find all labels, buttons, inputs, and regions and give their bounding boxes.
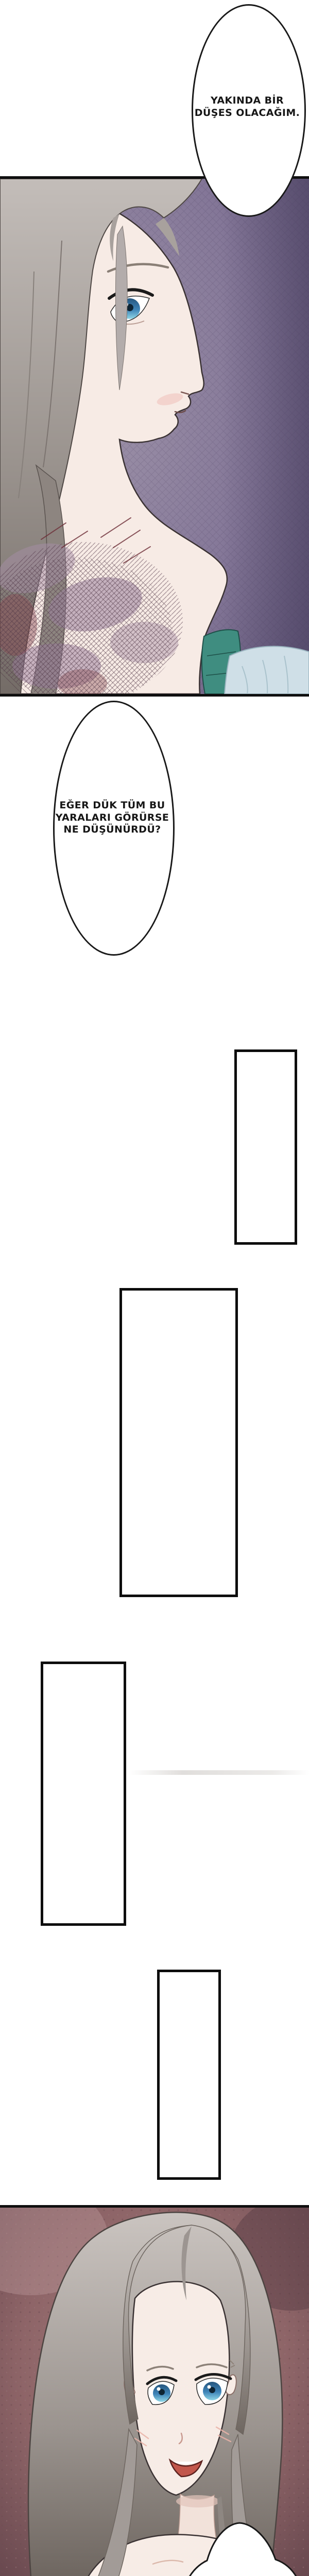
speech-text-duchess: YAKINDA BİR DÜŞES OLACAĞIM.	[192, 95, 303, 119]
narration-box-realize	[234, 1049, 297, 1245]
garment-blue	[225, 647, 309, 694]
narration-box-beating	[41, 1662, 126, 1926]
webtoon-page: Magic Toon	[0, 0, 309, 2576]
narration-box-nobles	[119, 1288, 238, 1597]
speech-bubble-first-night	[175, 2517, 309, 2576]
speech-text-wounds: EĞER DÜK TÜM BU YARALARI GÖRÜRSE NE DÜŞÜ…	[53, 800, 171, 836]
panel-profile-bruised-shoulder	[0, 176, 309, 697]
narration-box-inthatcase	[157, 1970, 221, 2180]
smudge-mark	[129, 1770, 309, 1775]
panel1-art	[0, 179, 309, 694]
